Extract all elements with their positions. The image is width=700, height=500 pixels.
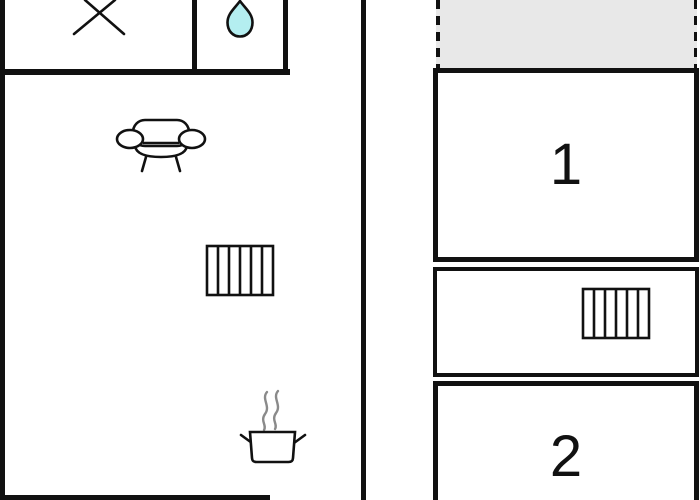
room-2-label: 2	[550, 428, 582, 486]
room-1-label: 1	[550, 136, 582, 194]
room-1: 1	[433, 68, 699, 262]
wall-divider-cross-room	[192, 0, 197, 69]
steam-icon	[263, 392, 267, 430]
sofa-icon	[114, 114, 208, 176]
wall-left-outer	[0, 0, 5, 500]
wall-top-partition	[0, 69, 290, 75]
steam-icon	[274, 391, 278, 429]
wall-bottom-left-unit	[0, 495, 270, 500]
terrace-dashed-border-right	[694, 0, 698, 69]
terrace-dashed-border-left	[436, 0, 440, 69]
cross-icon	[58, 0, 142, 36]
room-middle	[433, 267, 699, 377]
wall-divider-bath-room	[283, 0, 288, 75]
radiator-icon	[205, 244, 275, 297]
water-drop-icon	[222, 0, 258, 40]
room-2: 2	[433, 381, 699, 500]
stove-pot-icon	[236, 388, 310, 468]
radiator-icon	[581, 287, 651, 340]
wall-right-left-unit	[361, 0, 366, 500]
floor-plan: 1 2	[0, 0, 700, 500]
terrace-area	[436, 0, 697, 69]
